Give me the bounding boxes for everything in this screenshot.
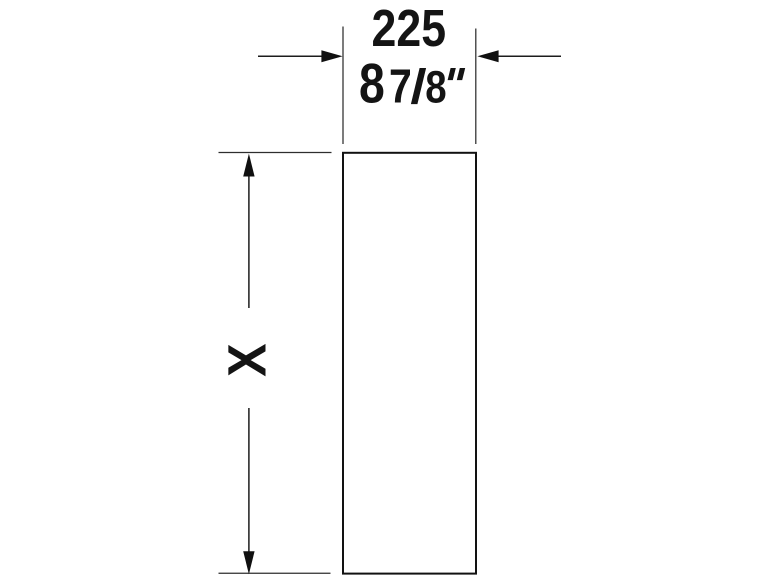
- svg-text:X: X: [218, 343, 278, 377]
- svg-text:8: 8: [425, 62, 446, 113]
- svg-text:8: 8: [359, 52, 385, 115]
- svg-text:7: 7: [389, 61, 412, 114]
- svg-text:225: 225: [372, 0, 447, 58]
